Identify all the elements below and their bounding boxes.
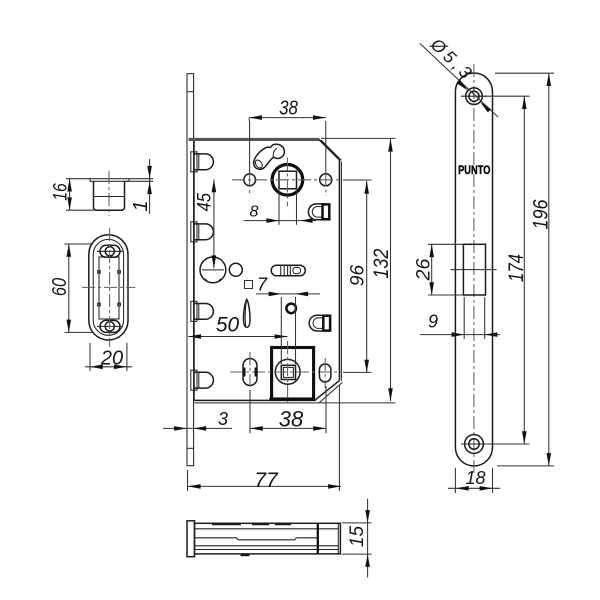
svg-text:15: 15 bbox=[347, 526, 368, 548]
svg-text:196: 196 bbox=[530, 199, 553, 229]
svg-text:26: 26 bbox=[413, 259, 435, 282]
svg-text:132: 132 bbox=[370, 248, 393, 278]
svg-text:9: 9 bbox=[428, 312, 438, 332]
svg-text:50: 50 bbox=[216, 314, 240, 337]
svg-text:174: 174 bbox=[505, 254, 528, 282]
svg-text:16: 16 bbox=[51, 183, 72, 201]
svg-text:20: 20 bbox=[100, 348, 123, 370]
svg-text:45: 45 bbox=[194, 193, 216, 212]
svg-text:77: 77 bbox=[254, 469, 279, 492]
svg-text:7: 7 bbox=[257, 275, 268, 295]
svg-text:60: 60 bbox=[49, 278, 71, 296]
svg-text:PUNTO: PUNTO bbox=[458, 165, 490, 177]
svg-text:8: 8 bbox=[250, 204, 259, 221]
svg-text:3: 3 bbox=[218, 409, 228, 429]
svg-text:1: 1 bbox=[130, 200, 152, 211]
svg-text:38: 38 bbox=[279, 97, 298, 120]
svg-text:18: 18 bbox=[465, 468, 485, 488]
svg-text:96: 96 bbox=[348, 265, 369, 287]
svg-text:38: 38 bbox=[279, 407, 304, 432]
